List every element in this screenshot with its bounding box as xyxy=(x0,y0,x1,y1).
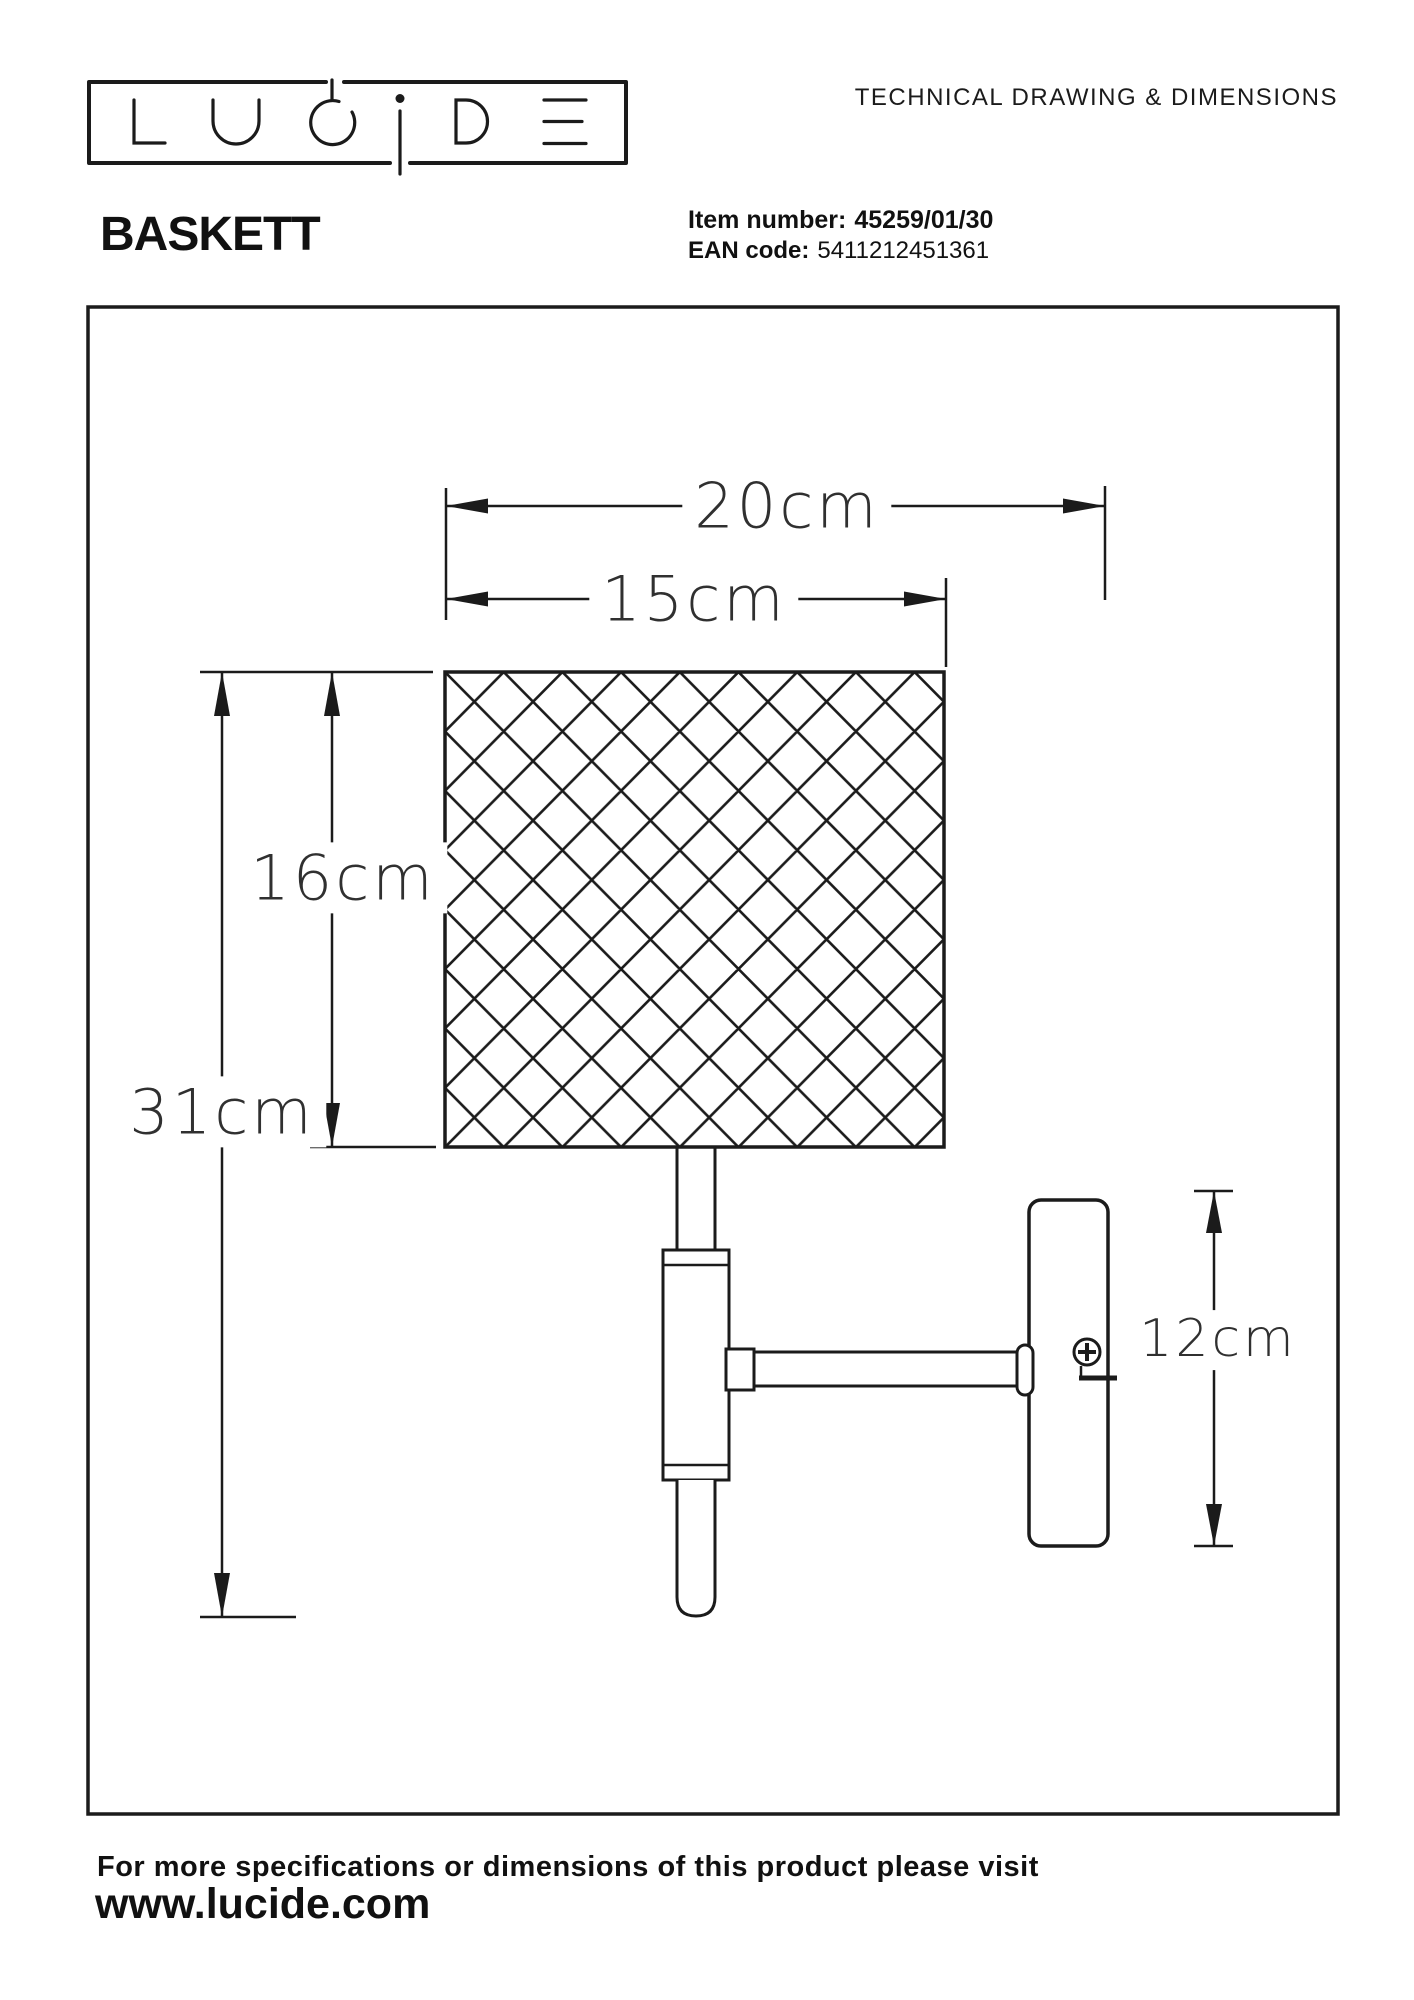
wall-mount xyxy=(726,1200,1117,1546)
arm-flange xyxy=(1017,1345,1033,1395)
letter-E xyxy=(544,100,586,144)
dimension-label-shade-height: 16cm xyxy=(238,842,447,913)
letter-L xyxy=(134,100,165,143)
item-number-row: Item number:45259/01/30 xyxy=(688,206,993,235)
upper-tube xyxy=(677,1147,715,1250)
dimension-label-wall-plate-height: 12cm xyxy=(1127,1310,1308,1370)
switch-body xyxy=(663,1250,729,1480)
lamp-stem xyxy=(663,1147,729,1616)
item-number-value: 45259/01/30 xyxy=(854,206,993,234)
lower-tube xyxy=(677,1480,715,1616)
arm-connector xyxy=(726,1349,754,1390)
ean-code-value: 5411212451361 xyxy=(817,237,989,264)
dimension-label-total-height: 31cm xyxy=(117,1076,326,1147)
item-number-label: Item number: xyxy=(688,206,846,234)
letter-i-dot xyxy=(396,94,405,103)
dimension-label-total-depth: 20cm xyxy=(682,470,891,541)
ean-code-row: EAN code:5411212451361 xyxy=(688,237,989,265)
lampshade xyxy=(445,672,944,1147)
product-name: BASKETT xyxy=(100,207,320,262)
wall-plate xyxy=(1029,1200,1108,1546)
website-link[interactable]: www.lucide.com xyxy=(95,1880,430,1929)
document-title: TECHNICAL DRAWING & DIMENSIONS xyxy=(855,84,1338,112)
drawing-canvas xyxy=(0,0,1414,2000)
brand-logo xyxy=(89,80,626,174)
arm xyxy=(754,1352,1018,1386)
letter-C xyxy=(311,101,355,145)
letter-D xyxy=(456,100,488,143)
logo-letters xyxy=(134,80,586,174)
dimension-label-shade-width: 15cm xyxy=(589,563,798,634)
technical-drawing-page: { "brand": { "name": "LUCIDE" }, "header… xyxy=(0,0,1414,2000)
letter-U xyxy=(213,100,259,144)
lampshade-hatch xyxy=(445,672,944,1147)
ean-code-label: EAN code: xyxy=(688,237,809,264)
